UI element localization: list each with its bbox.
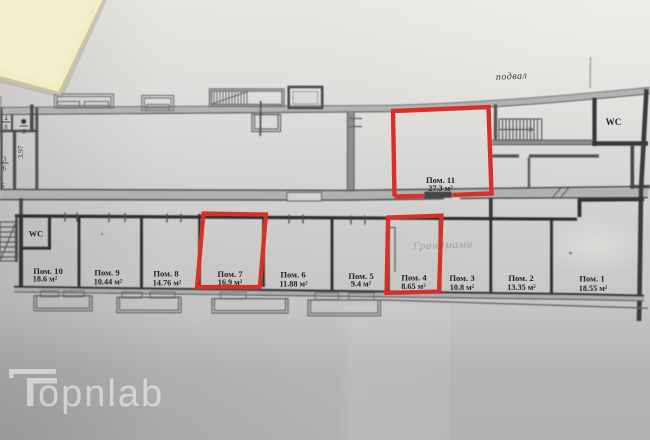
svg-text:11.88 м²: 11.88 м² <box>279 280 308 289</box>
svg-text:WC: WC <box>606 117 622 127</box>
svg-text:Пом. 2: Пом. 2 <box>508 273 533 283</box>
svg-text:8.65 м²: 8.65 м² <box>401 282 426 291</box>
svg-text:4: 4 <box>4 115 8 123</box>
svg-text:6: 6 <box>3 165 7 173</box>
svg-text:8: 8 <box>22 128 26 136</box>
svg-text:3: 3 <box>3 156 7 164</box>
svg-text:10.44 м²: 10.44 м² <box>94 278 123 287</box>
svg-text:18.55 м²: 18.55 м² <box>579 284 608 293</box>
svg-text:18.6 м²: 18.6 м² <box>33 275 58 284</box>
svg-text:Пом. 9: Пом. 9 <box>94 268 119 278</box>
svg-text:Пом. 8: Пом. 8 <box>153 269 179 279</box>
svg-text:Пом. 6: Пом. 6 <box>280 270 306 280</box>
svg-text:opnlab: opnlab <box>38 373 164 415</box>
svg-text:27.3 м²: 27.3 м² <box>428 184 453 193</box>
svg-text:подвал: подвал <box>496 70 528 83</box>
svg-text:WC: WC <box>29 230 43 239</box>
svg-text:Пом. 1: Пом. 1 <box>579 274 604 284</box>
svg-text:6: 6 <box>1 181 5 190</box>
svg-text:Пом. 3: Пом. 3 <box>449 273 474 283</box>
svg-text:14.76 м²: 14.76 м² <box>153 279 182 288</box>
svg-text:9.4 м²: 9.4 м² <box>351 280 372 289</box>
svg-text:10.8 м²: 10.8 м² <box>450 283 475 292</box>
svg-text:Пом. 4: Пом. 4 <box>401 273 427 283</box>
svg-text:13.35 м²: 13.35 м² <box>507 283 536 292</box>
svg-text:3.97: 3.97 <box>16 145 25 158</box>
svg-text:8: 8 <box>4 124 8 132</box>
